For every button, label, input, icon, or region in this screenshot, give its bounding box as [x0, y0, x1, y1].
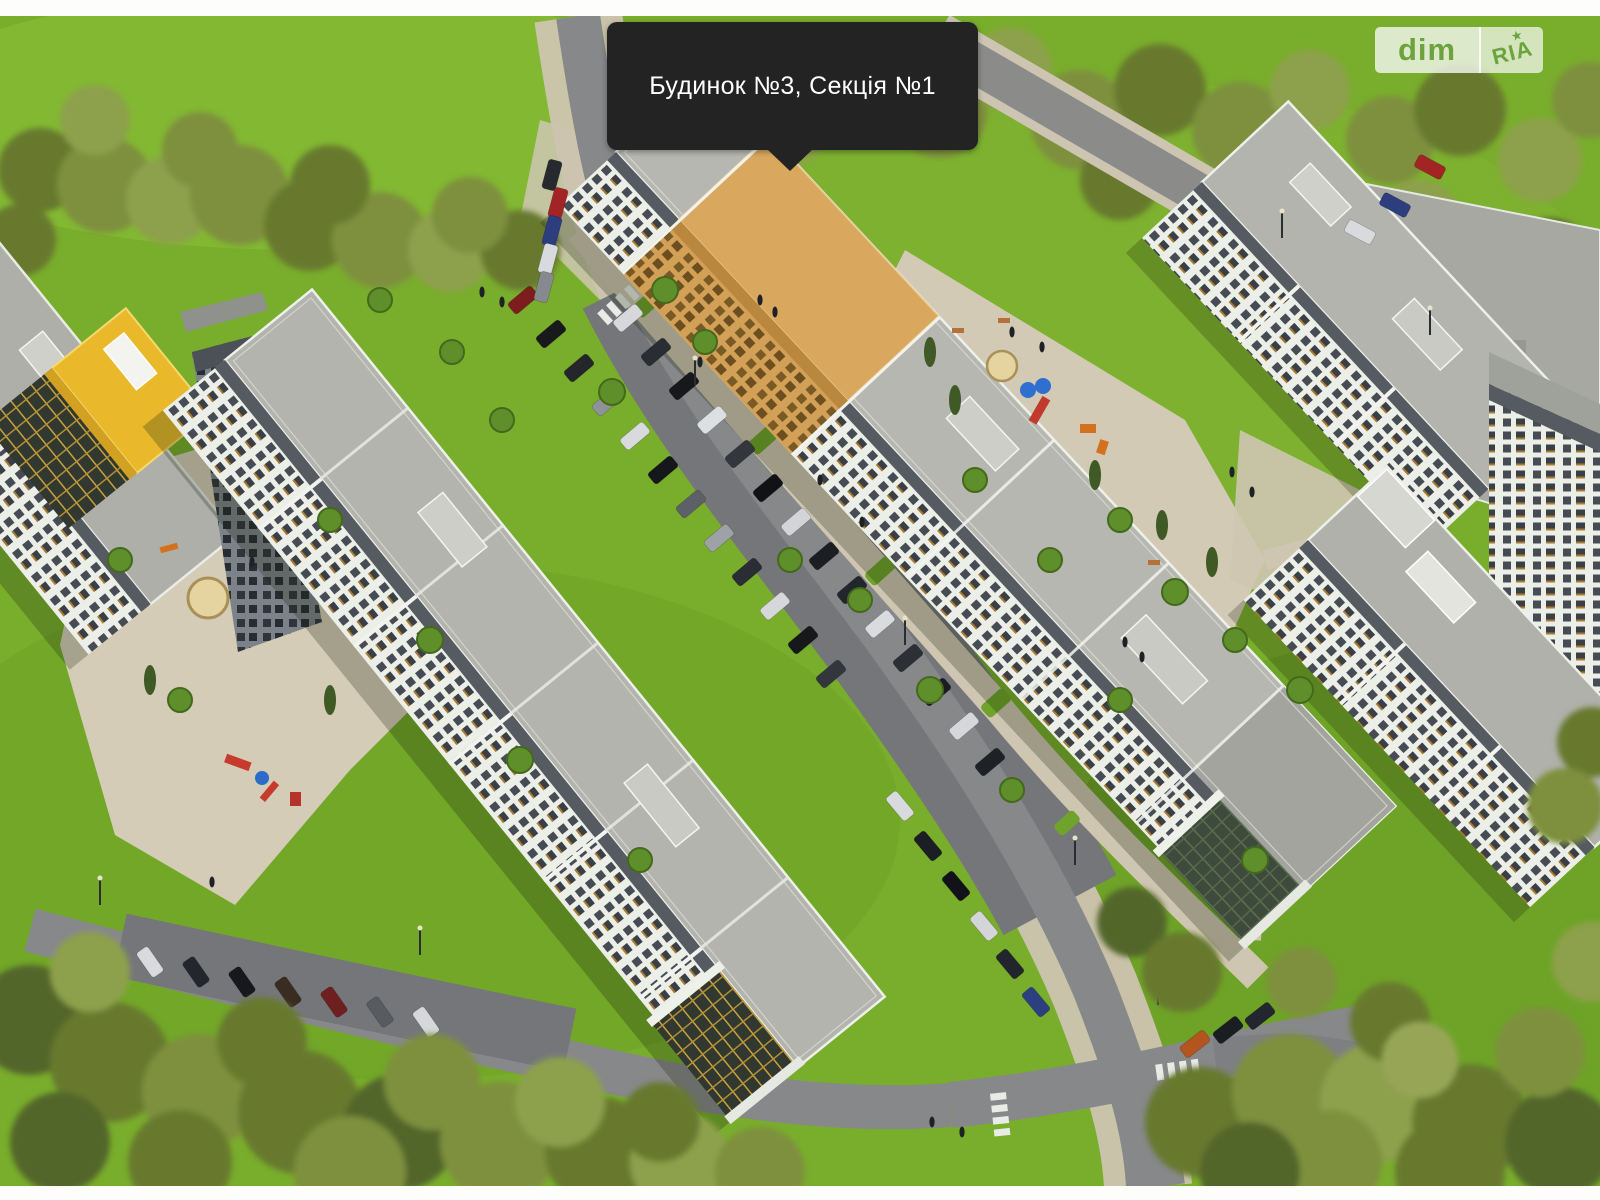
dim-ria-watermark: dim ★ RIA [1375, 27, 1543, 73]
ria-logo-box: ★ RIA [1479, 27, 1543, 73]
complex-aerial-render [0, 16, 1600, 1186]
tooltip-arrow [768, 150, 812, 171]
new-building-plan-view: Будинок №3, Секція №1 dim ★ RIA [0, 0, 1600, 1200]
tooltip-label: Будинок №3, Секція №1 [649, 72, 936, 101]
dim-logo-text: dim [1375, 27, 1479, 73]
top-margin [0, 0, 1600, 16]
building-section-tooltip: Будинок №3, Секція №1 [607, 22, 978, 150]
bottom-margin [0, 1186, 1600, 1200]
ria-logo-text: RIA [1489, 35, 1535, 70]
